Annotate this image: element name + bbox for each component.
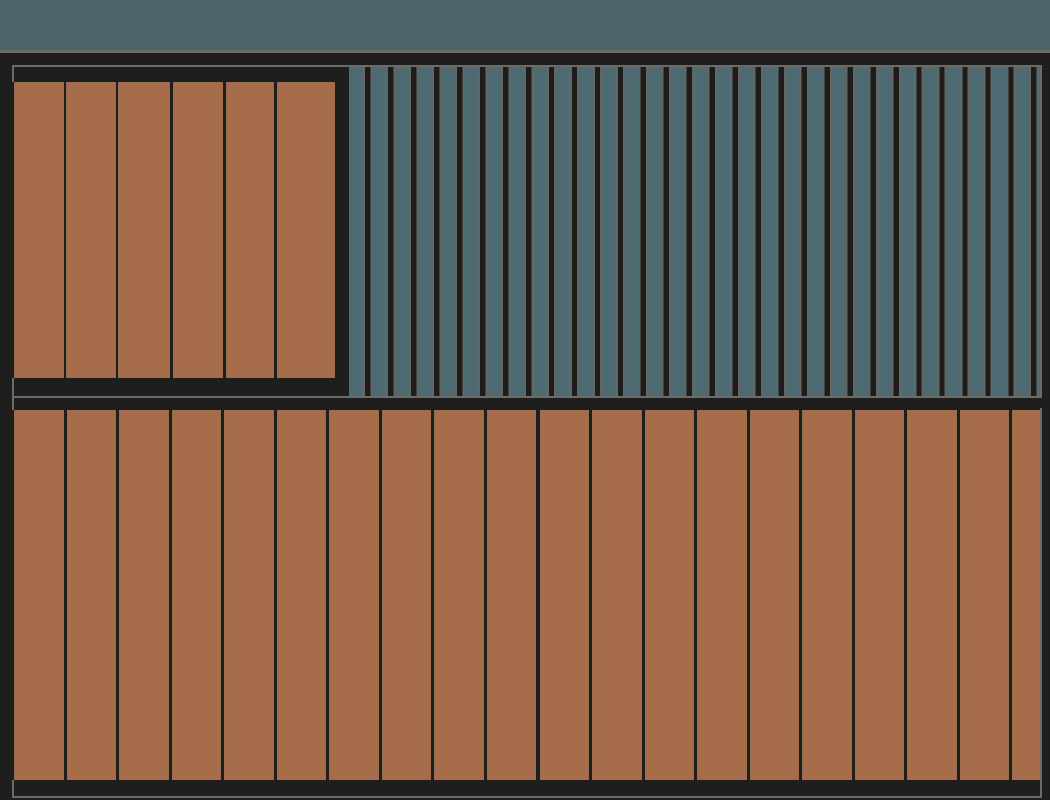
top-band — [0, 0, 1050, 50]
wood-plank — [855, 410, 905, 780]
wood-plank — [277, 410, 327, 780]
top-divider-line — [0, 50, 1050, 53]
wood-plank — [118, 82, 170, 378]
wood-plank — [645, 410, 695, 780]
wood-plank — [382, 410, 432, 780]
wood-plank — [119, 410, 169, 780]
wood-plank — [540, 410, 590, 780]
border-cover-strip — [12, 410, 14, 780]
wood-plank — [750, 410, 800, 780]
wood-plank — [172, 410, 222, 780]
wood-plank — [960, 410, 1010, 780]
wood-plank — [14, 82, 64, 378]
wood-plank — [226, 82, 274, 378]
wood-plank — [1012, 410, 1042, 780]
wood-plank — [487, 410, 537, 780]
wood-plank — [173, 82, 223, 378]
wood-plank — [224, 410, 274, 780]
wood-plank — [802, 410, 852, 780]
wood-plank — [697, 410, 747, 780]
wood-plank — [67, 410, 117, 780]
upper-wall-section — [12, 65, 1042, 398]
slat-screen — [349, 67, 1040, 396]
border-cover-strip — [12, 82, 14, 378]
wood-plank — [14, 410, 64, 780]
wood-plank — [329, 410, 379, 780]
wood-plank — [277, 82, 335, 378]
facade-elevation-render — [0, 0, 1050, 800]
lower-wall-section — [12, 408, 1042, 798]
wood-plank — [592, 410, 642, 780]
wood-plank — [434, 410, 484, 780]
wood-plank — [907, 410, 957, 780]
wood-plank — [66, 82, 116, 378]
